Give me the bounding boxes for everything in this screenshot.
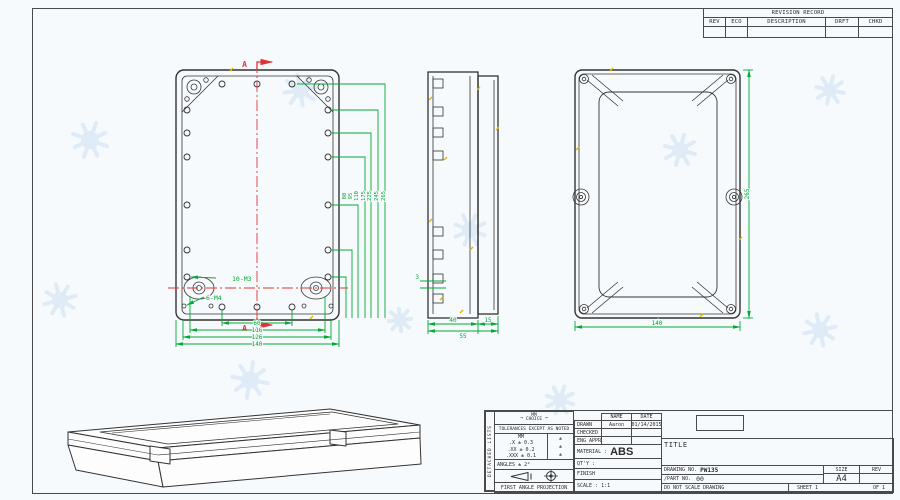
sheet-cell: SHEET 1 OF 1 [788,483,894,493]
revision-empty-cell [703,26,726,38]
drawing-no-label: DRAWING NO. [664,467,697,473]
revision-empty-cell [825,26,859,38]
target-projection-icon [544,469,558,483]
stamp-box [696,415,744,431]
tolerance-alt-1: ± [559,435,562,443]
sheet-label: SHEET 1 [797,485,818,491]
tolerance-alt-column: ± ± ± [547,433,574,460]
material-cell: MATERIAL : ABS [574,444,662,459]
title-block: DETACHED LISTS → MM CHOICE ← TOLERANCES … [484,410,893,492]
tolerance-alt-3: ± [559,451,562,459]
scale-label: SCALE : 1:1 [574,479,662,493]
projection-label: FIRST ANGLE PROJECTION [494,482,574,493]
revision-record-table: REVISION RECORD REV ECO DESCRIPTION DRFT… [703,8,893,38]
tolerance-alt-2: ± [559,443,562,451]
drawing-no-value: PW135 [700,467,718,474]
units-cell: → MM CHOICE ← [494,411,574,425]
drawing-sheet: A A 60 116 [0,0,900,500]
do-not-scale-note: DO NOT SCALE DRAWING [661,483,789,493]
title-field: TITLE [661,438,894,466]
revision-empty-cell [858,26,893,38]
part-no-value: 00 [696,475,704,483]
revision-empty-cell [747,26,826,38]
detached-lists-label: DETACHED LISTS [488,425,493,477]
cone-projection-icon [510,471,536,482]
projection-symbol-cell [494,469,574,483]
sheet-of-label: OF 1 [873,485,885,491]
tolerance-mm-column: MM .X ± 0.3 .XX ± 0.2 .XXX ± 0.1 [494,433,548,460]
units-sub-label: CHOICE [526,418,542,423]
revision-empty-cell [725,26,748,38]
part-no-label: /PART NO. [664,476,691,482]
arrow-left-icon: ← [545,415,548,421]
arrow-right-icon: → [520,415,523,421]
material-value: ABS [610,446,633,458]
material-label: MATERIAL : [577,449,607,455]
